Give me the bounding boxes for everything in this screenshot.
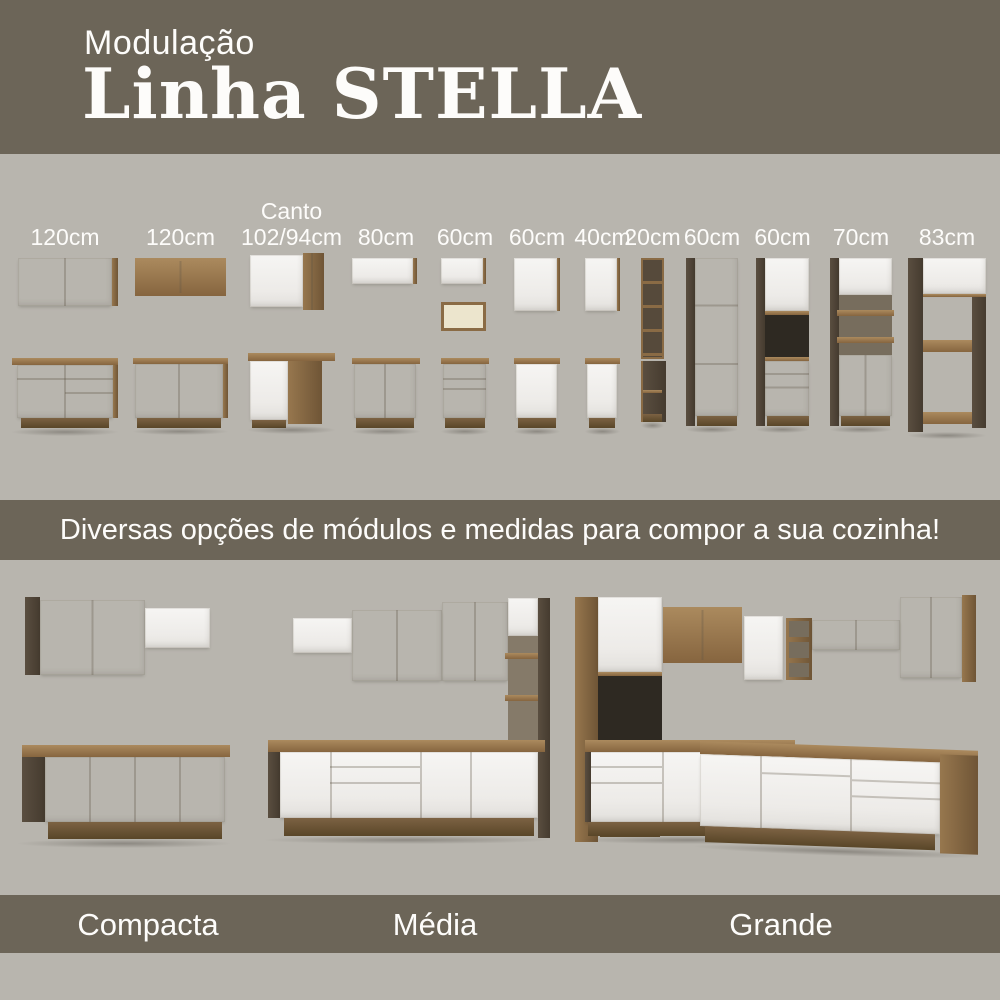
product-graphic: Modulação Linha STELLA 120cm 120cm xyxy=(0,0,1000,1000)
wall-cabinet xyxy=(18,258,112,306)
header-band: Modulação Linha STELLA xyxy=(0,0,1000,154)
top-door xyxy=(765,258,809,311)
floor-shadow xyxy=(352,428,420,435)
drawer-line xyxy=(17,378,113,380)
base-cabinet xyxy=(135,364,223,418)
wall-cabinet xyxy=(585,258,617,311)
countertop xyxy=(12,358,118,365)
wall-cabinet xyxy=(514,258,557,311)
wall-flap-cabinet xyxy=(352,258,413,284)
module-size-label: 120cm xyxy=(146,224,215,251)
drawer-stack xyxy=(765,361,809,416)
top-cabinet xyxy=(923,258,986,294)
kitchen-label-grande: Grande xyxy=(729,907,832,943)
corner-base-wood-panel xyxy=(288,361,322,424)
floor-shadow xyxy=(756,426,809,433)
kitchens-section xyxy=(0,560,1000,895)
top-door xyxy=(839,258,892,295)
plinth xyxy=(445,418,485,428)
plinth xyxy=(767,416,809,426)
base-run-right xyxy=(700,754,940,834)
corner-base-door xyxy=(250,361,288,420)
module-40cm: 40cm xyxy=(585,154,620,500)
floor-shadow xyxy=(248,426,335,434)
open-shelf-zone xyxy=(839,295,892,355)
module-canto: Canto 102/94cm xyxy=(248,154,335,500)
plinth xyxy=(21,418,109,428)
tall-side-panel xyxy=(756,258,765,426)
tall-cabinet-doors xyxy=(695,258,738,416)
module-size-label-top: Canto xyxy=(261,198,322,225)
module-60cm-door: 60cm xyxy=(514,154,560,500)
module-size-label: 20cm xyxy=(624,224,680,251)
floor-shadow xyxy=(830,426,892,433)
glass-door xyxy=(138,261,223,293)
floor-shadow xyxy=(686,426,738,433)
base-cabinet xyxy=(516,364,557,418)
module-80cm: 80cm xyxy=(352,154,420,500)
module-size-label: 83cm xyxy=(919,224,975,251)
floor-shadow xyxy=(514,428,560,435)
kitchen-label-media: Média xyxy=(393,907,477,943)
wood-crossbar xyxy=(923,412,972,424)
plinth xyxy=(518,418,556,428)
plinth xyxy=(697,416,737,426)
wood-shelf xyxy=(837,310,894,316)
tall-side-panel-left xyxy=(908,258,923,432)
plinth xyxy=(841,416,890,426)
base-end-panel xyxy=(940,754,978,854)
module-size-label: 102/94cm xyxy=(241,224,342,251)
brand-title: Linha STELLA xyxy=(82,54,642,135)
base-cabinet xyxy=(587,364,617,418)
module-120cm-1: 120cm xyxy=(12,154,118,500)
module-60cm-niche: 60cm xyxy=(441,154,489,500)
module-size-label: 60cm xyxy=(437,224,493,251)
base-cabinet xyxy=(354,364,416,418)
drawer-line xyxy=(65,392,113,394)
module-70cm-tall: 70cm xyxy=(830,154,892,500)
modules-section: 120cm 120cm Canto 102/94cm xyxy=(0,154,1000,500)
plinth xyxy=(589,418,615,428)
module-size-label: 60cm xyxy=(754,224,810,251)
module-20cm: 20cm xyxy=(641,154,664,500)
wall-side-panel xyxy=(413,258,417,284)
base-side-panel xyxy=(113,365,118,418)
module-size-label: 80cm xyxy=(358,224,414,251)
module-60cm-oven-tower: 60cm xyxy=(756,154,809,500)
floor-shadow xyxy=(133,428,228,435)
module-size-label: 40cm xyxy=(574,224,630,251)
grande-right-arm xyxy=(0,536,1000,906)
module-60cm-tall-pantry: 60cm xyxy=(686,154,738,500)
wood-shelf xyxy=(837,337,894,343)
wood-crossbar xyxy=(923,340,972,352)
bottom-doors xyxy=(839,355,892,416)
wall-flap-cabinet xyxy=(441,258,483,284)
module-83cm-frame: 83cm xyxy=(908,154,986,500)
module-size-label: 60cm xyxy=(684,224,740,251)
oven-niche xyxy=(765,315,809,357)
kitchen-label-compacta: Compacta xyxy=(77,907,218,943)
floor-shadow xyxy=(585,428,620,435)
corner-countertop xyxy=(248,353,335,361)
base-drawer-cabinet xyxy=(443,364,486,418)
wall-side-panel xyxy=(112,258,118,306)
wall-side-panel xyxy=(557,258,560,311)
module-size-label: 60cm xyxy=(509,224,565,251)
corner-wall-door xyxy=(250,255,303,307)
open-shelf-rack xyxy=(641,258,664,359)
tall-side-panel-right xyxy=(972,297,986,428)
door-seam xyxy=(760,756,762,828)
plinth xyxy=(356,418,414,428)
corner-wall-wood-column xyxy=(303,253,324,310)
plinth xyxy=(137,418,221,428)
floor-shadow xyxy=(641,422,664,429)
module-size-label: 120cm xyxy=(30,224,99,251)
open-niche xyxy=(441,302,486,331)
plinth xyxy=(643,414,662,422)
floor-shadow xyxy=(441,428,489,435)
base-shelf xyxy=(643,390,662,393)
footer-band: Compacta Média Grande xyxy=(0,895,1000,953)
floor-shadow xyxy=(908,432,986,439)
module-120cm-2: 120cm xyxy=(133,154,228,500)
wall-side-panel xyxy=(483,258,486,284)
wall-side-panel xyxy=(617,258,620,311)
module-size-label: 70cm xyxy=(833,224,889,251)
tall-side-panel xyxy=(686,258,695,426)
floor-shadow xyxy=(12,428,118,436)
base-side-panel xyxy=(223,364,228,418)
wood-seam xyxy=(311,253,313,310)
